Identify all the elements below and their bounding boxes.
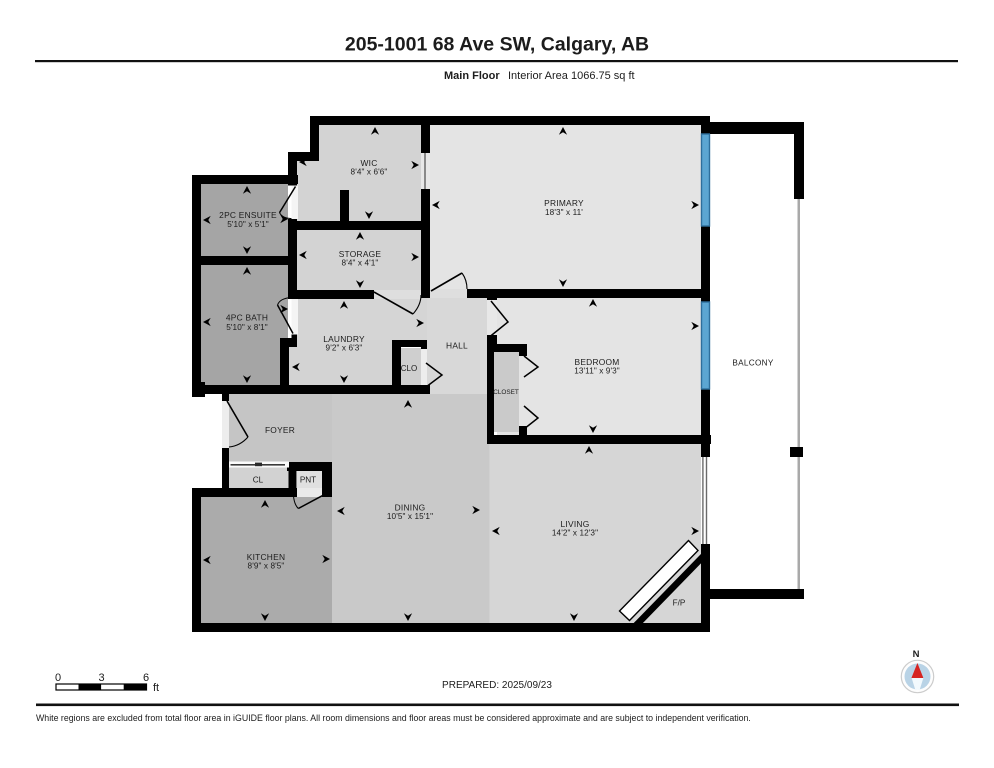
- svg-text:8'4" x 4'1": 8'4" x 4'1": [342, 259, 379, 268]
- svg-text:KITCHEN: KITCHEN: [247, 552, 286, 562]
- svg-text:Main Floor: Main Floor: [444, 70, 500, 82]
- svg-text:18'3" x 11': 18'3" x 11': [545, 208, 583, 217]
- svg-text:2PC ENSUITE: 2PC ENSUITE: [219, 210, 277, 220]
- svg-text:8'9" x 8'5": 8'9" x 8'5": [248, 562, 285, 571]
- svg-text:5'10" x 5'1": 5'10" x 5'1": [227, 220, 269, 229]
- svg-text:White regions are excluded fro: White regions are excluded from total fl…: [36, 713, 751, 723]
- svg-text:PRIMARY: PRIMARY: [544, 198, 584, 208]
- svg-text:CL: CL: [253, 476, 264, 485]
- svg-text:N: N: [913, 649, 920, 660]
- svg-text:DINING: DINING: [395, 503, 426, 513]
- svg-text:5'10" x 8'1": 5'10" x 8'1": [226, 323, 268, 332]
- svg-text:PNT: PNT: [300, 476, 316, 485]
- svg-text:LIVING: LIVING: [561, 519, 590, 529]
- svg-text:8'4" x 6'6": 8'4" x 6'6": [351, 168, 388, 177]
- svg-text:HALL: HALL: [446, 341, 468, 351]
- svg-text:WIC: WIC: [360, 158, 377, 168]
- svg-text:BEDROOM: BEDROOM: [574, 357, 619, 367]
- svg-text:CLO: CLO: [401, 364, 417, 373]
- svg-text:9'2" x 6'3": 9'2" x 6'3": [326, 344, 363, 353]
- svg-text:BALCONY: BALCONY: [732, 359, 773, 368]
- svg-text:Interior Area 1066.75 sq ft: Interior Area 1066.75 sq ft: [508, 70, 635, 82]
- svg-text:FOYER: FOYER: [265, 425, 295, 435]
- svg-text:F/P: F/P: [673, 599, 686, 608]
- svg-text:CLOSET: CLOSET: [493, 389, 519, 396]
- svg-text:0: 0: [55, 672, 61, 684]
- svg-text:14'2" x 12'3": 14'2" x 12'3": [552, 529, 598, 538]
- svg-text:6: 6: [143, 672, 149, 684]
- svg-text:4PC BATH: 4PC BATH: [226, 313, 268, 323]
- svg-text:LAUNDRY: LAUNDRY: [323, 334, 365, 344]
- svg-text:PREPARED: 2025/09/23: PREPARED: 2025/09/23: [442, 680, 552, 691]
- svg-text:13'11" x 9'3": 13'11" x 9'3": [574, 367, 620, 376]
- svg-text:3: 3: [98, 672, 104, 684]
- svg-text:10'5" x 15'1": 10'5" x 15'1": [387, 512, 433, 521]
- svg-text:205-1001 68 Ave SW, Calgary, A: 205-1001 68 Ave SW, Calgary, AB: [345, 34, 649, 56]
- svg-text:STORAGE: STORAGE: [339, 249, 382, 259]
- svg-text:ft: ft: [153, 682, 159, 694]
